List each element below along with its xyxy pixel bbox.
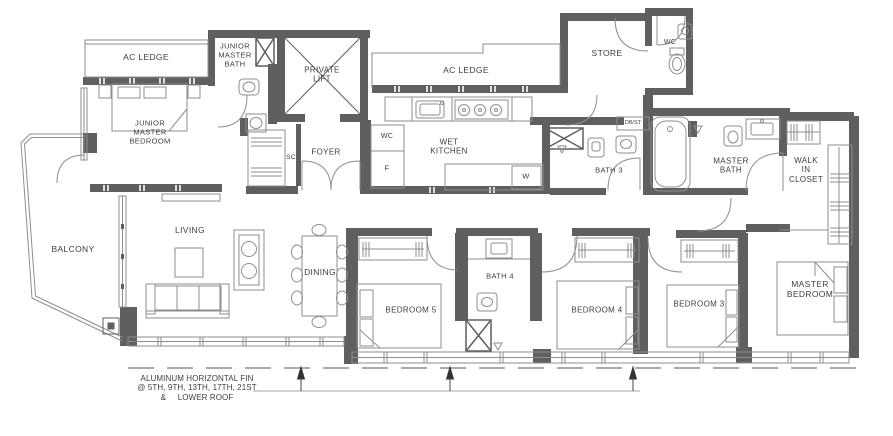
bedroom3-furniture	[667, 240, 739, 347]
floor-plan-drawing	[0, 0, 893, 436]
bedroom5-door-arc	[427, 236, 458, 270]
dining-table	[302, 236, 337, 316]
bedroom5-furniture	[357, 238, 441, 348]
store-door-arc	[615, 18, 648, 51]
sink	[588, 138, 604, 157]
toilet	[616, 136, 636, 153]
floor-plan: AC LEDGE JUNIOR MASTER BATH PRIVATE LIFT…	[0, 0, 893, 436]
foyer-door-right-arc	[331, 161, 360, 190]
bathtub	[651, 117, 690, 191]
coffee-table	[175, 248, 203, 277]
fridge-box	[371, 151, 404, 188]
fin-arrows	[298, 367, 637, 391]
master-bedroom-door-arc	[697, 198, 731, 231]
shower-head	[494, 343, 502, 350]
bedroom3-door-arc	[648, 238, 682, 272]
toilet	[477, 293, 497, 311]
walk-in-closet-units	[787, 121, 852, 244]
master-bath-door-arc	[746, 153, 783, 191]
private-lift-cross	[285, 38, 360, 114]
wall-louvers	[100, 78, 527, 193]
bath3-fixtures	[558, 136, 636, 157]
bedroom4-door-arc	[542, 236, 577, 272]
wc-kitchen-box	[371, 125, 404, 151]
duct-shaft	[256, 38, 274, 66]
tv-console	[162, 194, 220, 201]
toilet	[239, 79, 259, 95]
loveseat	[234, 230, 264, 290]
vanity-sink	[246, 114, 266, 132]
foyer-door-left-arc	[302, 161, 331, 190]
dining-set	[292, 225, 348, 328]
junior-master-bed	[99, 84, 200, 131]
sink	[486, 239, 512, 258]
bedroom4-furniture	[557, 238, 639, 349]
master-bed	[777, 262, 848, 335]
washer-box	[512, 166, 541, 189]
furniture	[99, 84, 848, 349]
sofa	[146, 284, 229, 318]
bath4-shower	[466, 320, 491, 351]
bath3-door-arc	[608, 158, 640, 190]
master-bath-fixtures	[651, 117, 780, 191]
wc-door-arc	[657, 16, 685, 45]
shoe-cabinet	[248, 130, 285, 186]
fin-annotation	[128, 367, 858, 391]
kitchen-counter	[385, 97, 532, 121]
